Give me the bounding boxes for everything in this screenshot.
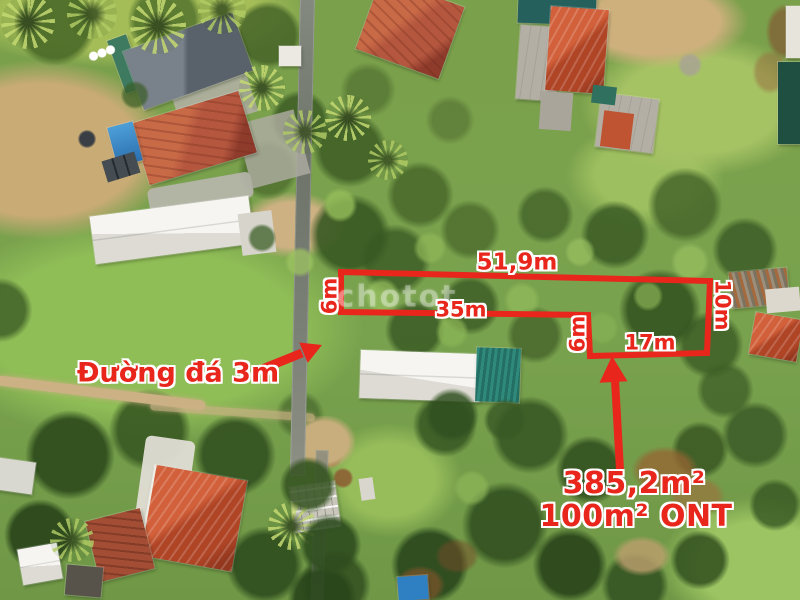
label-area-residential: 100m² ONT	[539, 502, 732, 532]
label-left-width: 6m	[320, 278, 341, 315]
label-top-length: 51,9m	[477, 252, 558, 275]
label-bottom-length: 17m	[624, 333, 675, 354]
label-area-total: 385,2m²	[563, 469, 706, 499]
label-road: Đường đá 3m	[77, 360, 279, 387]
aerial-photo: 51,9m 6m 35m 6m 17m 10m Đường đá 3m 385,…	[0, 0, 800, 600]
area-arrow-line	[615, 380, 620, 470]
road-arrow-head	[299, 343, 322, 363]
label-inner-width: 6m	[568, 316, 589, 353]
label-inner-length: 35m	[435, 300, 486, 321]
area-arrow-head	[600, 356, 628, 383]
label-right-width: 10m	[712, 279, 733, 330]
